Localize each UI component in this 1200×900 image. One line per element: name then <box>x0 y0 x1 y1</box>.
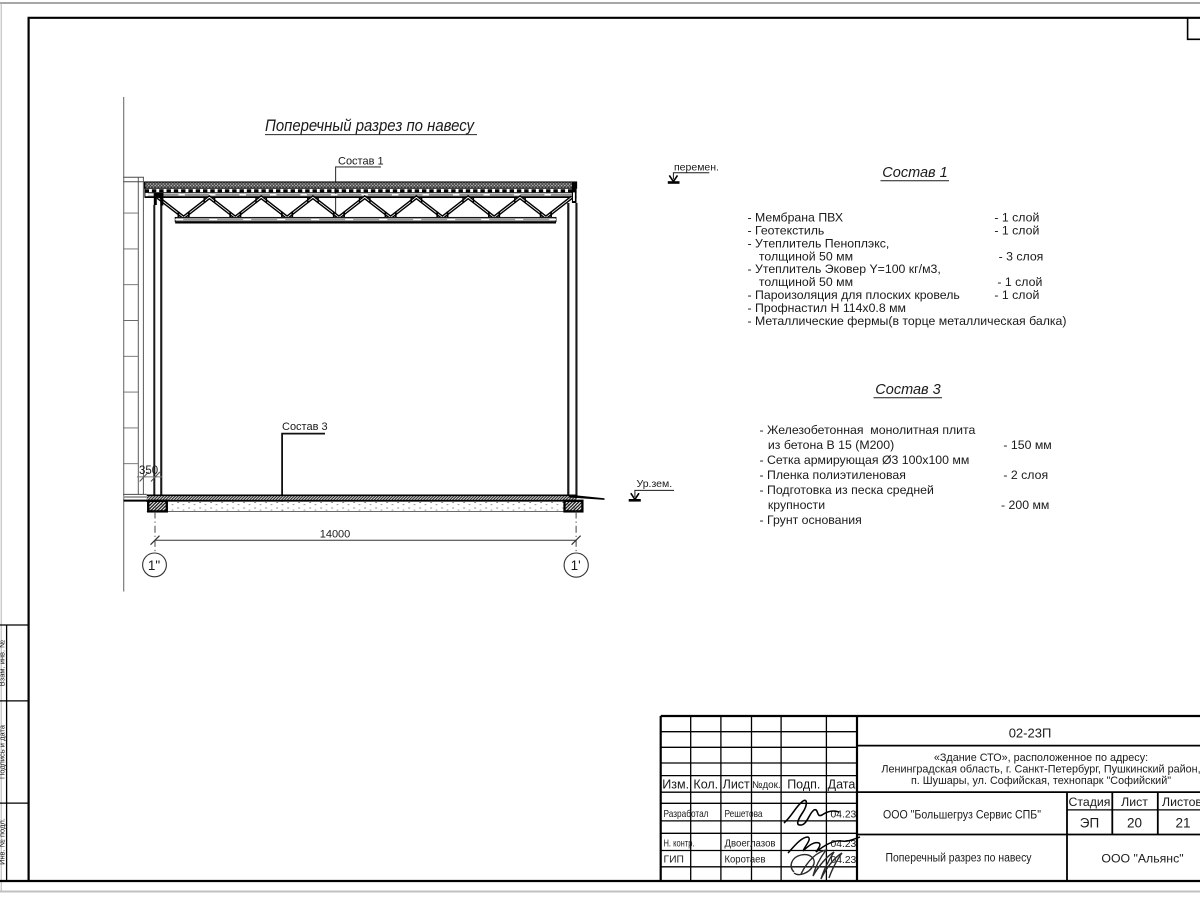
svg-text:Инв. № подл.: Инв. № подл. <box>0 818 7 865</box>
svg-text:Взам. инв. №: Взам. инв. № <box>0 640 7 686</box>
svg-text:Листов: Листов <box>1162 795 1200 809</box>
svg-text:- 1 слой: - 1 слой <box>994 224 1039 238</box>
svg-text:№док.: №док. <box>752 780 781 791</box>
svg-text:- Пленка полиэтиленовая: - Пленка полиэтиленовая <box>760 468 906 482</box>
svg-text:- Металлические фермы(в торце: - Металлические фермы(в торце металличес… <box>748 314 1067 328</box>
svg-text:Стадия: Стадия <box>1069 795 1111 809</box>
svg-text:02-23П: 02-23П <box>1009 726 1052 741</box>
svg-text:толщиной 50 мм: толщиной 50 мм <box>759 275 853 289</box>
svg-text:Кол.: Кол. <box>693 778 718 792</box>
svg-text:«Здание СТО», расположенное по: «Здание СТО», расположенное по адресу: <box>934 752 1148 764</box>
svg-text:- 2 слоя: - 2 слоя <box>1003 468 1048 482</box>
svg-text:Разработал: Разработал <box>664 808 709 820</box>
svg-text:Решетова: Решетова <box>725 809 763 820</box>
svg-text:- Пароизоляция для плоских кро: - Пароизоляция для плоских кровель <box>748 288 960 302</box>
svg-text:Состав 3: Состав 3 <box>875 382 940 398</box>
svg-text:14000: 14000 <box>320 529 351 541</box>
svg-text:п. Шушары, ул. Софийская, техн: п. Шушары, ул. Софийская, технопарк "Соф… <box>911 775 1171 787</box>
svg-text:Н. контр.: Н. контр. <box>664 838 695 849</box>
svg-text:из бетона В 15 (М200): из бетона В 15 (М200) <box>768 438 894 452</box>
svg-text:- Профнастил Н 114х0.8 мм: - Профнастил Н 114х0.8 мм <box>748 301 906 315</box>
svg-text:Изм.: Изм. <box>662 778 689 792</box>
svg-text:ЭП: ЭП <box>1080 816 1099 831</box>
svg-text:- Утеплитель Пеноплэкс,: - Утеплитель Пеноплэкс, <box>748 236 890 250</box>
svg-text:1': 1' <box>571 558 581 573</box>
svg-text:ООО "Большегруз Сервис СПБ": ООО "Большегруз Сервис СПБ" <box>883 810 1041 822</box>
svg-text:21: 21 <box>1175 816 1190 831</box>
svg-text:- 200 мм: - 200 мм <box>1001 498 1049 512</box>
svg-text:перемен.: перемен. <box>674 162 719 174</box>
svg-text:- Грунт основания: - Грунт основания <box>760 513 862 527</box>
svg-text:Коротаев: Коротаев <box>725 854 766 865</box>
svg-text:- 3 слоя: - 3 слоя <box>999 249 1044 263</box>
svg-text:- 1 слой: - 1 слой <box>994 211 1039 225</box>
svg-text:Дата: Дата <box>828 778 856 792</box>
svg-text:20: 20 <box>1127 816 1142 831</box>
svg-text:- Утеплитель Эковер Y=100 кг/м: - Утеплитель Эковер Y=100 кг/м3, <box>748 262 941 276</box>
svg-text:Поперечный разрез по навесу: Поперечный разрез по навесу <box>265 116 475 135</box>
svg-text:Поперечный разрез по навесу: Поперечный разрез по навесу <box>886 853 1032 865</box>
svg-text:350: 350 <box>139 465 158 477</box>
svg-text:Ур.зем.: Ур.зем. <box>637 478 673 490</box>
svg-text:- Железобетонная монолитная п: - Железобетонная монолитная плита <box>760 423 976 437</box>
svg-text:Состав 1: Состав 1 <box>882 165 947 181</box>
svg-text:Лист: Лист <box>723 778 750 792</box>
svg-text:Состав 3: Состав 3 <box>282 421 328 433</box>
svg-text:- 1 слой: - 1 слой <box>994 288 1039 302</box>
svg-text:- 150 мм: - 150 мм <box>1003 438 1051 452</box>
svg-text:Ленинградская область, г. Санк: Ленинградская область, г. Санкт-Петербур… <box>881 763 1200 775</box>
svg-text:Подпись и дата: Подпись и дата <box>0 724 7 779</box>
svg-text:толщиной 50 мм: толщиной 50 мм <box>759 249 853 263</box>
svg-text:- Геотекстиль: - Геотекстиль <box>748 224 825 238</box>
svg-text:Лист: Лист <box>1121 795 1148 809</box>
svg-text:крупности: крупности <box>768 498 825 512</box>
svg-text:ГИП: ГИП <box>664 854 684 865</box>
svg-text:Двоеглазов: Двоеглазов <box>725 838 776 849</box>
svg-text:Подп.: Подп. <box>787 778 820 792</box>
svg-text:- Подготовка из песка средней: - Подготовка из песка средней <box>760 483 934 497</box>
svg-text:- 1 слой: - 1 слой <box>997 275 1042 289</box>
svg-text:ООО "Альянс": ООО "Альянс" <box>1101 852 1183 866</box>
svg-text:1": 1" <box>148 558 161 573</box>
svg-text:Состав 1: Состав 1 <box>338 156 384 168</box>
svg-text:- Мембрана ПВХ: - Мембрана ПВХ <box>748 211 844 225</box>
svg-text:- Сетка армирующая Ø3 100х100: - Сетка армирующая Ø3 100х100 мм <box>760 453 970 467</box>
